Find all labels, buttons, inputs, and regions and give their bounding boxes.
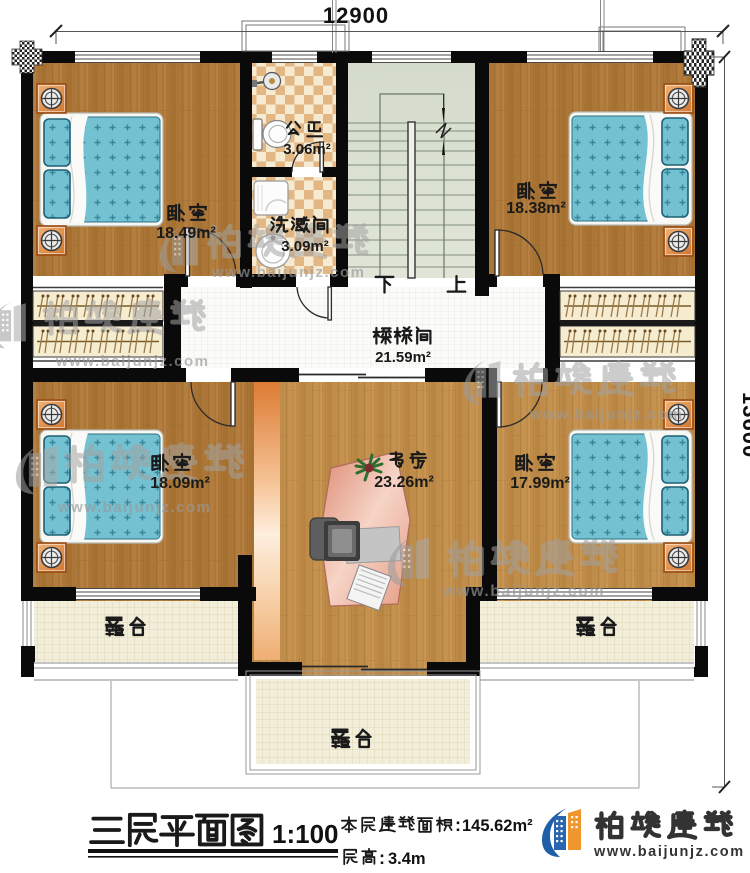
svg-text:145.62m²: 145.62m² <box>462 817 533 835</box>
svg-text:3.06m²: 3.06m² <box>283 141 331 158</box>
svg-text:3.4m: 3.4m <box>388 850 426 868</box>
svg-text::: : <box>379 848 385 868</box>
svg-text:18.49m²: 18.49m² <box>156 225 216 242</box>
svg-text:21.59m²: 21.59m² <box>375 349 431 366</box>
svg-text:23.26m²: 23.26m² <box>374 474 434 491</box>
svg-text:18.38m²: 18.38m² <box>506 200 566 217</box>
svg-text:www.baijunjz.com: www.baijunjz.com <box>593 844 745 860</box>
svg-text:www.baijunjz.com: www.baijunjz.com <box>529 406 683 423</box>
svg-text:www.baijunjz.com: www.baijunjz.com <box>55 353 209 370</box>
svg-text:18.09m²: 18.09m² <box>150 475 210 492</box>
svg-text:17.99m²: 17.99m² <box>510 475 570 492</box>
svg-text:www.baijunjz.com: www.baijunjz.com <box>211 264 365 281</box>
svg-text:1:100: 1:100 <box>272 819 339 849</box>
svg-text:12900: 12900 <box>323 3 389 28</box>
svg-text:13600: 13600 <box>738 392 750 458</box>
svg-text:3.09m²: 3.09m² <box>281 238 329 255</box>
svg-text:www.baijunjz.com: www.baijunjz.com <box>442 583 605 600</box>
svg-text:www.baijunjz.com: www.baijunjz.com <box>57 499 211 516</box>
svg-text::: : <box>455 815 461 835</box>
